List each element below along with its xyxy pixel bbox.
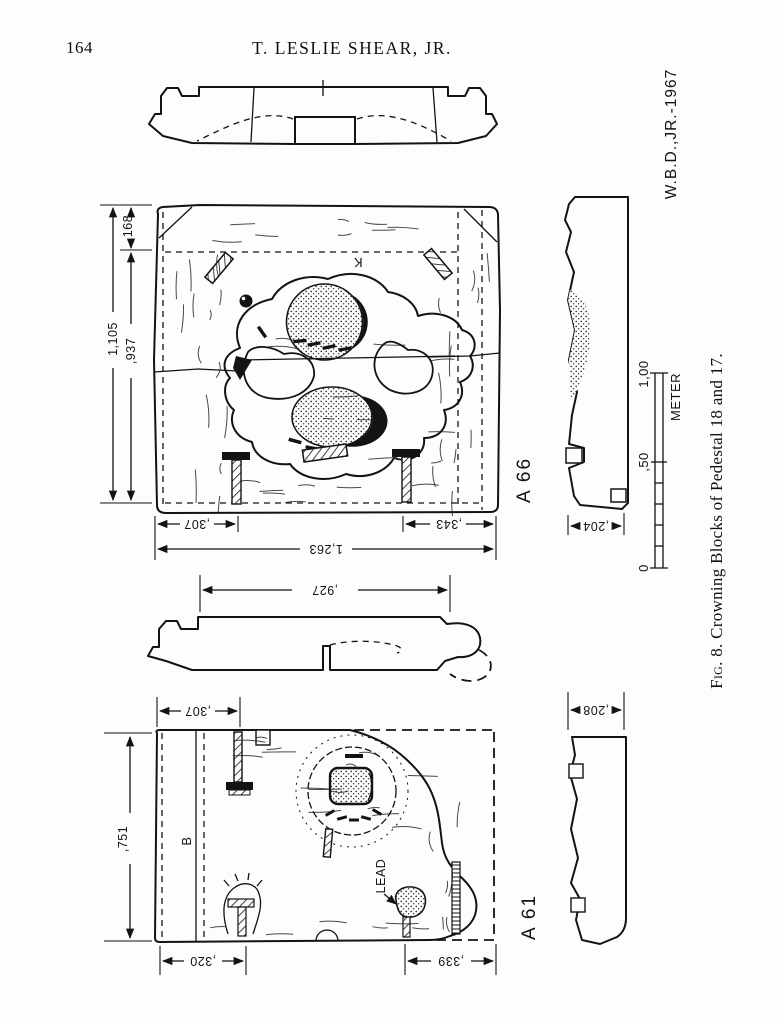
smooth-lobe-right [374, 342, 432, 394]
dowel-cutting [296, 735, 408, 847]
plan-a61-outline [155, 730, 476, 942]
clamp-cutting-right [392, 449, 420, 502]
dims-a66-bottom: ,307 ,343 1,263 [155, 516, 496, 560]
figure-8-drawing: K [0, 0, 784, 1024]
plan-a66: K [154, 205, 500, 516]
dim-751-label: ,751 [116, 826, 130, 852]
block-label-a61: A 61 [519, 894, 540, 940]
stippled-boss [292, 387, 372, 447]
pry-cutting-right [424, 249, 452, 280]
dim-307-label: ,307 [184, 517, 210, 531]
dims-a61: ,307 ,751 ,320 ,339 [104, 697, 496, 975]
lead-clamp-cutting: LEAD [374, 859, 425, 937]
dim-208-label: ,208 [583, 703, 609, 717]
dim-168-label: ,168 [121, 215, 135, 241]
scale-unit-label: METER [668, 373, 683, 421]
dim-1105-label: 1,105 [106, 322, 120, 356]
chisel-band [452, 862, 460, 934]
clamp-cutting-top [226, 732, 253, 795]
cross-section-mid: ,927 [148, 575, 491, 681]
scanned-paper-page: 164 T. LESLIE SHEAR, JR. [0, 0, 784, 1024]
dim-937-label: ,937 [124, 338, 138, 364]
plan-a61: B [155, 730, 494, 942]
dim-204-label: ,204 [583, 519, 609, 533]
dim-320-label: ,320 [190, 954, 216, 968]
clamp-cutting-left [222, 452, 250, 504]
figure-caption: Fig. 8. Crowning Blocks of Pedestal 18 a… [707, 353, 727, 689]
draftsman-credit: W.B.D.,JR.-1967 [663, 69, 680, 199]
dim-927-label: ,927 [312, 583, 338, 597]
point-label-k: K [353, 255, 362, 270]
dim-a61-307-label: ,307 [185, 704, 211, 718]
scale-bar: 1,00 ,50 0 METER [636, 360, 683, 572]
section-a66: ,204 A 66 [514, 197, 628, 535]
dim-343-label: ,343 [436, 517, 462, 531]
dowel-notch [295, 117, 355, 144]
strip-label-b: B [179, 836, 194, 845]
pry-cutting-center [323, 829, 332, 858]
clamp-cutting-bottom-left [224, 873, 262, 936]
pry-cutting-left [205, 253, 233, 284]
dowel-hole [240, 295, 253, 308]
section-a61: ,208 A 61 [519, 692, 626, 944]
figure-caption-text: Crowning Blocks of Pedestal 18 and 17. [707, 353, 726, 643]
cross-section-top [149, 80, 497, 144]
block-label-a66: A 66 [514, 457, 535, 503]
lead-label: LEAD [374, 859, 388, 894]
scale-zero-label: 0 [636, 564, 651, 572]
scale-mid-label: ,50 [636, 452, 651, 472]
dim-1263-label: 1,263 [309, 542, 343, 556]
scale-max-label: 1,00 [636, 360, 651, 387]
figure-caption-number: Fig. 8. [707, 643, 726, 688]
weathered-center [225, 274, 475, 479]
dims-a66-left: 1,105 ,168 ,937 [100, 205, 152, 503]
dim-339-label: ,339 [438, 954, 464, 968]
